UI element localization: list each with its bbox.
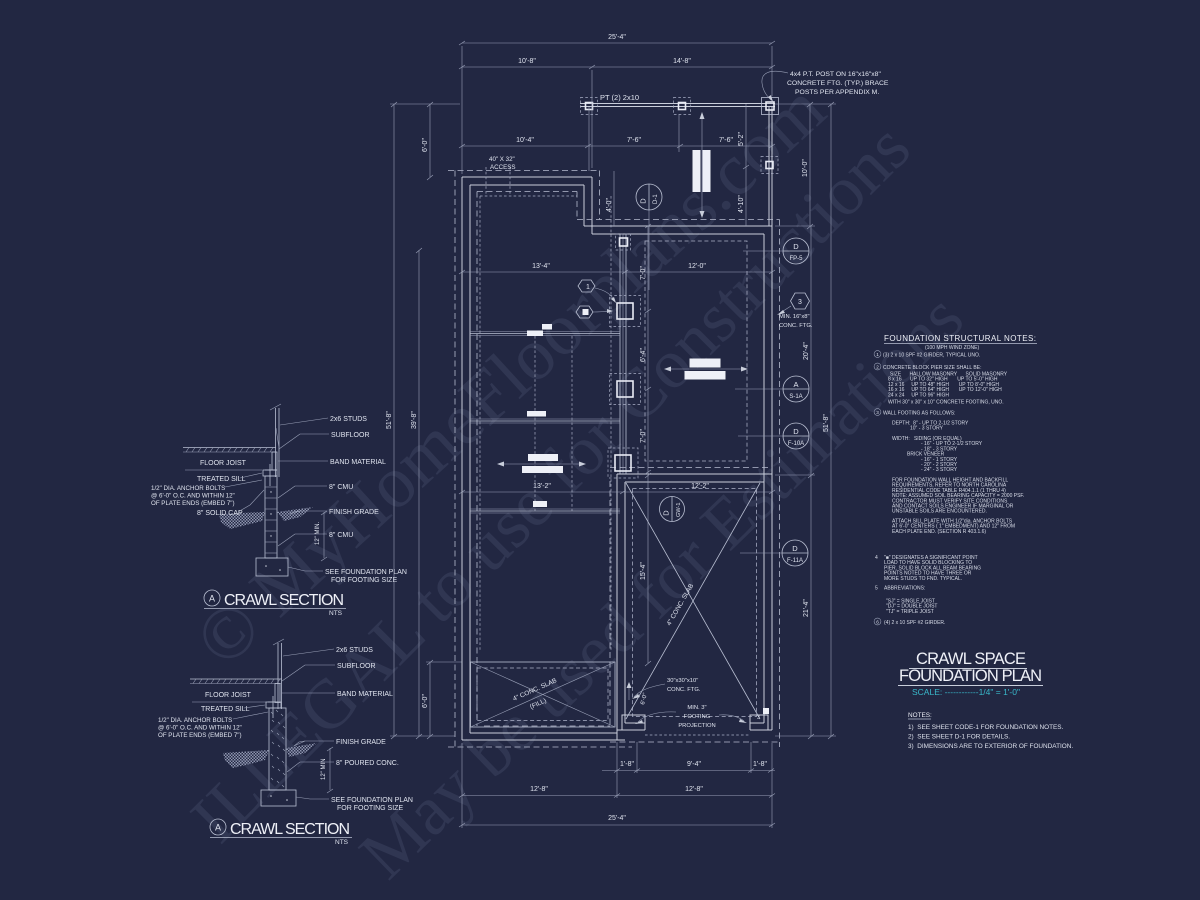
svg-text:10'-4": 10'-4" [516,137,534,144]
svg-text:3: 3 [798,299,802,306]
svg-text:4'-0": 4'-0" [606,198,613,212]
svg-text:FINISH GRADE: FINISH GRADE [336,739,386,746]
svg-text:4'-10": 4'-10" [738,195,745,213]
svg-text:TREATED SILL: TREATED SILL [201,706,250,713]
svg-text:12'-8": 12'-8" [685,786,703,793]
svg-text:TREATED SILL: TREATED SILL [197,476,246,483]
svg-text:1: 1 [876,352,879,357]
svg-text:8" CMU: 8" CMU [329,484,353,491]
svg-text:NOTES:: NOTES: [908,712,932,719]
svg-text:D: D [639,198,648,204]
svg-text:7'-0": 7'-0" [640,266,647,280]
svg-text:WALL FOOTING AS FOLLOWS:: WALL FOOTING AS FOLLOWS: [883,411,955,417]
svg-text:EACH PLATE END. (SECTION R 403: EACH PLATE END. (SECTION R 403.1.6) [892,529,986,535]
svg-text:GW-1: GW-1 [676,502,682,517]
svg-text:24 x 24 UP TO 96" HIGH: 24 x 24 UP TO 96" HIGH [888,392,949,398]
svg-text:25'-4": 25'-4" [608,34,626,41]
svg-text:2x6 STUDS: 2x6 STUDS [336,647,373,654]
svg-text:3) DIMENSIONS ARE TO EXTERIOR: 3) DIMENSIONS ARE TO EXTERIOR OF FOUNDAT… [908,743,1073,750]
svg-text:3: 3 [757,715,760,721]
svg-text:1'-8": 1'-8" [753,761,767,768]
svg-text:40" X 32": 40" X 32" [489,156,515,163]
svg-text:UNSTABLE SOILS ARE ENCOUNTERED: UNSTABLE SOILS ARE ENCOUNTERED. [892,509,987,515]
svg-text:1: 1 [586,284,590,291]
svg-text:8" CMU: 8" CMU [329,532,353,539]
svg-text:25'-4": 25'-4" [608,815,626,822]
svg-text:51'-8": 51'-8" [386,411,393,429]
svg-text:12'-2": 12'-2" [691,483,709,490]
svg-text:CRAWL SPACE: CRAWL SPACE [916,650,1026,668]
svg-text:7'-0": 7'-0" [640,429,647,443]
svg-text:ABBREVIATIONS:: ABBREVIATIONS: [884,586,925,592]
svg-text:7'-6": 7'-6" [719,137,733,144]
svg-text:10'-8": 10'-8" [518,58,536,65]
svg-text:MIN. 16"x8": MIN. 16"x8" [779,314,810,320]
svg-text:F-10A: F-10A [788,441,804,447]
svg-text:NTS: NTS [329,610,343,617]
svg-text:D: D [793,242,799,251]
svg-text:21'-4": 21'-4" [803,599,810,617]
svg-text:13'-4": 13'-4" [532,263,550,270]
svg-text:1/2" DIA. ANCHOR BOLTS: 1/2" DIA. ANCHOR BOLTS [151,485,225,492]
svg-text:8" SOLID CAP: 8" SOLID CAP [197,510,243,517]
svg-text:13'-2": 13'-2" [533,483,551,490]
svg-text:CONC. FTG.: CONC. FTG. [779,323,813,329]
svg-text:15'-4": 15'-4" [640,562,647,580]
svg-text:20'-4": 20'-4" [803,342,810,360]
svg-text:1/2" DIA. ANCHOR BOLTS: 1/2" DIA. ANCHOR BOLTS [158,717,232,724]
svg-text:F-11A: F-11A [787,558,803,564]
svg-text:30"x30"x10": 30"x30"x10" [667,678,698,684]
svg-text:SUBFLOOR: SUBFLOOR [337,663,376,670]
svg-text:14'-8": 14'-8" [673,58,691,65]
svg-text:39'-8": 39'-8" [411,411,418,429]
svg-text:3: 3 [876,410,879,415]
svg-text:7'-6": 7'-6" [627,137,641,144]
svg-text:S-1A: S-1A [789,394,802,400]
svg-text:12'-0": 12'-0" [688,263,706,270]
svg-text:CRAWL SECTION: CRAWL SECTION [224,592,344,609]
svg-text:FOUNDATION STRUCTURAL NOTES:: FOUNDATION STRUCTURAL NOTES: [884,334,1036,343]
svg-text:51'-8": 51'-8" [823,414,830,432]
svg-text:MIN. 3": MIN. 3" [687,705,706,711]
svg-text:(3) 2 x 10 SPF #2 GIRDER, TYPI: (3) 2 x 10 SPF #2 GIRDER, TYPICAL UNO. [883,353,980,359]
svg-text:5'-2": 5'-2" [738,132,745,146]
svg-text:6: 6 [876,620,879,625]
svg-text:9'-4": 9'-4" [687,761,701,768]
svg-text:5: 5 [875,586,878,592]
svg-text:A: A [793,380,798,389]
svg-text:WITH 30" x 30" x 10" CONCRETE: WITH 30" x 30" x 10" CONCRETE FOOTING, U… [888,400,1004,406]
svg-text:POSTS PER APPENDIX M.: POSTS PER APPENDIX M. [795,89,879,96]
svg-text:- 24" - 3 STORY: - 24" - 3 STORY [921,467,958,473]
svg-text:FOOTING: FOOTING [684,714,711,720]
svg-text:FOUNDATION PLAN: FOUNDATION PLAN [899,667,1042,685]
svg-text:MORE STUDS TO FND. TYPICAL.: MORE STUDS TO FND. TYPICAL. [884,576,962,582]
svg-text:SCALE: ------------1/4" = 1'-0: SCALE: ------------1/4" = 1'-0" [912,687,1020,697]
svg-text:CONC. FTG.: CONC. FTG. [667,687,701,693]
svg-text:FINISH GRADE: FINISH GRADE [329,509,379,516]
svg-text:CONCRETE FTG. (TYP.) BRACE: CONCRETE FTG. (TYP.) BRACE [787,80,889,87]
svg-text:SEE FOUNDATION PLAN: SEE FOUNDATION PLAN [325,569,407,576]
svg-text:FOR FOOTING SIZE: FOR FOOTING SIZE [331,577,397,584]
svg-text:@ 6'-0" O.C. AND WITHIN 12": @ 6'-0" O.C. AND WITHIN 12" [151,493,235,500]
svg-text:FLOOR JOIST: FLOOR JOIST [200,460,247,467]
svg-text:(4) 2 x 10 SPF #2 GIRDER.: (4) 2 x 10 SPF #2 GIRDER. [884,620,945,626]
svg-text:CONCRETE BLOCK PIER SIZE SHALL: CONCRETE BLOCK PIER SIZE SHALL BE: [883,365,981,371]
svg-text:D: D [793,427,799,436]
svg-text:1) SEE SHEET CODE-1 FOR FOUND: 1) SEE SHEET CODE-1 FOR FOUNDATION NOTES… [908,724,1064,731]
svg-text:"TJ" = TRIPLE JOIST: "TJ" = TRIPLE JOIST [886,609,934,615]
svg-text:CRAWL SECTION: CRAWL SECTION [230,821,350,838]
svg-text:(100 MPH WIND ZONE): (100 MPH WIND ZONE) [925,345,980,351]
svg-text:FLOOR JOIST: FLOOR JOIST [205,692,252,699]
svg-text:ACCESS: ACCESS [490,164,515,171]
svg-text:PROJECTION: PROJECTION [678,723,715,729]
svg-text:4x4 P.T. POST ON 16"x16"x8": 4x4 P.T. POST ON 16"x16"x8" [790,71,881,78]
svg-text:@ 6'-0" O.C. AND WITHIN 12": @ 6'-0" O.C. AND WITHIN 12" [158,725,242,732]
svg-text:8" POURED CONC.: 8" POURED CONC. [336,760,399,767]
svg-text:10" - 3 STORY: 10" - 3 STORY [910,426,944,432]
svg-text:SUBFLOOR: SUBFLOOR [331,432,370,439]
svg-text:A: A [209,594,215,604]
svg-text:SEE FOUNDATION PLAN: SEE FOUNDATION PLAN [331,797,413,804]
svg-text:D: D [662,510,671,516]
svg-text:10'-0": 10'-0" [802,159,809,177]
svg-text:2: 2 [876,365,879,370]
svg-text:2) SEE SHEET D-1 FOR DETAILS.: 2) SEE SHEET D-1 FOR DETAILS. [908,734,1010,741]
svg-text:6'-0": 6'-0" [422,138,429,152]
svg-text:NTS: NTS [335,839,349,846]
svg-text:6'-0": 6'-0" [422,694,429,708]
svg-text:D: D [792,544,798,553]
svg-text:PT (2) 2x10: PT (2) 2x10 [600,93,639,102]
svg-text:FOR FOOTING SIZE: FOR FOOTING SIZE [337,805,403,812]
svg-text:A: A [215,823,221,833]
svg-text:12" MIN.: 12" MIN. [315,522,321,545]
svg-text:OF PLATE ENDS (EMBED 7"): OF PLATE ENDS (EMBED 7") [158,732,242,739]
svg-text:12'-8": 12'-8" [530,786,548,793]
svg-text:2x6 STUDS: 2x6 STUDS [330,416,367,423]
svg-text:1'-8": 1'-8" [620,761,634,768]
svg-text:BAND MATERIAL: BAND MATERIAL [330,459,386,466]
svg-text:4: 4 [875,555,878,561]
svg-text:6'-4": 6'-4" [640,348,647,362]
svg-text:OF PLATE ENDS (EMBED 7"): OF PLATE ENDS (EMBED 7") [151,500,235,507]
svg-text:FP-5: FP-5 [789,256,803,262]
svg-text:BAND MATERIAL: BAND MATERIAL [337,691,393,698]
svg-text:D-1: D-1 [653,194,659,204]
